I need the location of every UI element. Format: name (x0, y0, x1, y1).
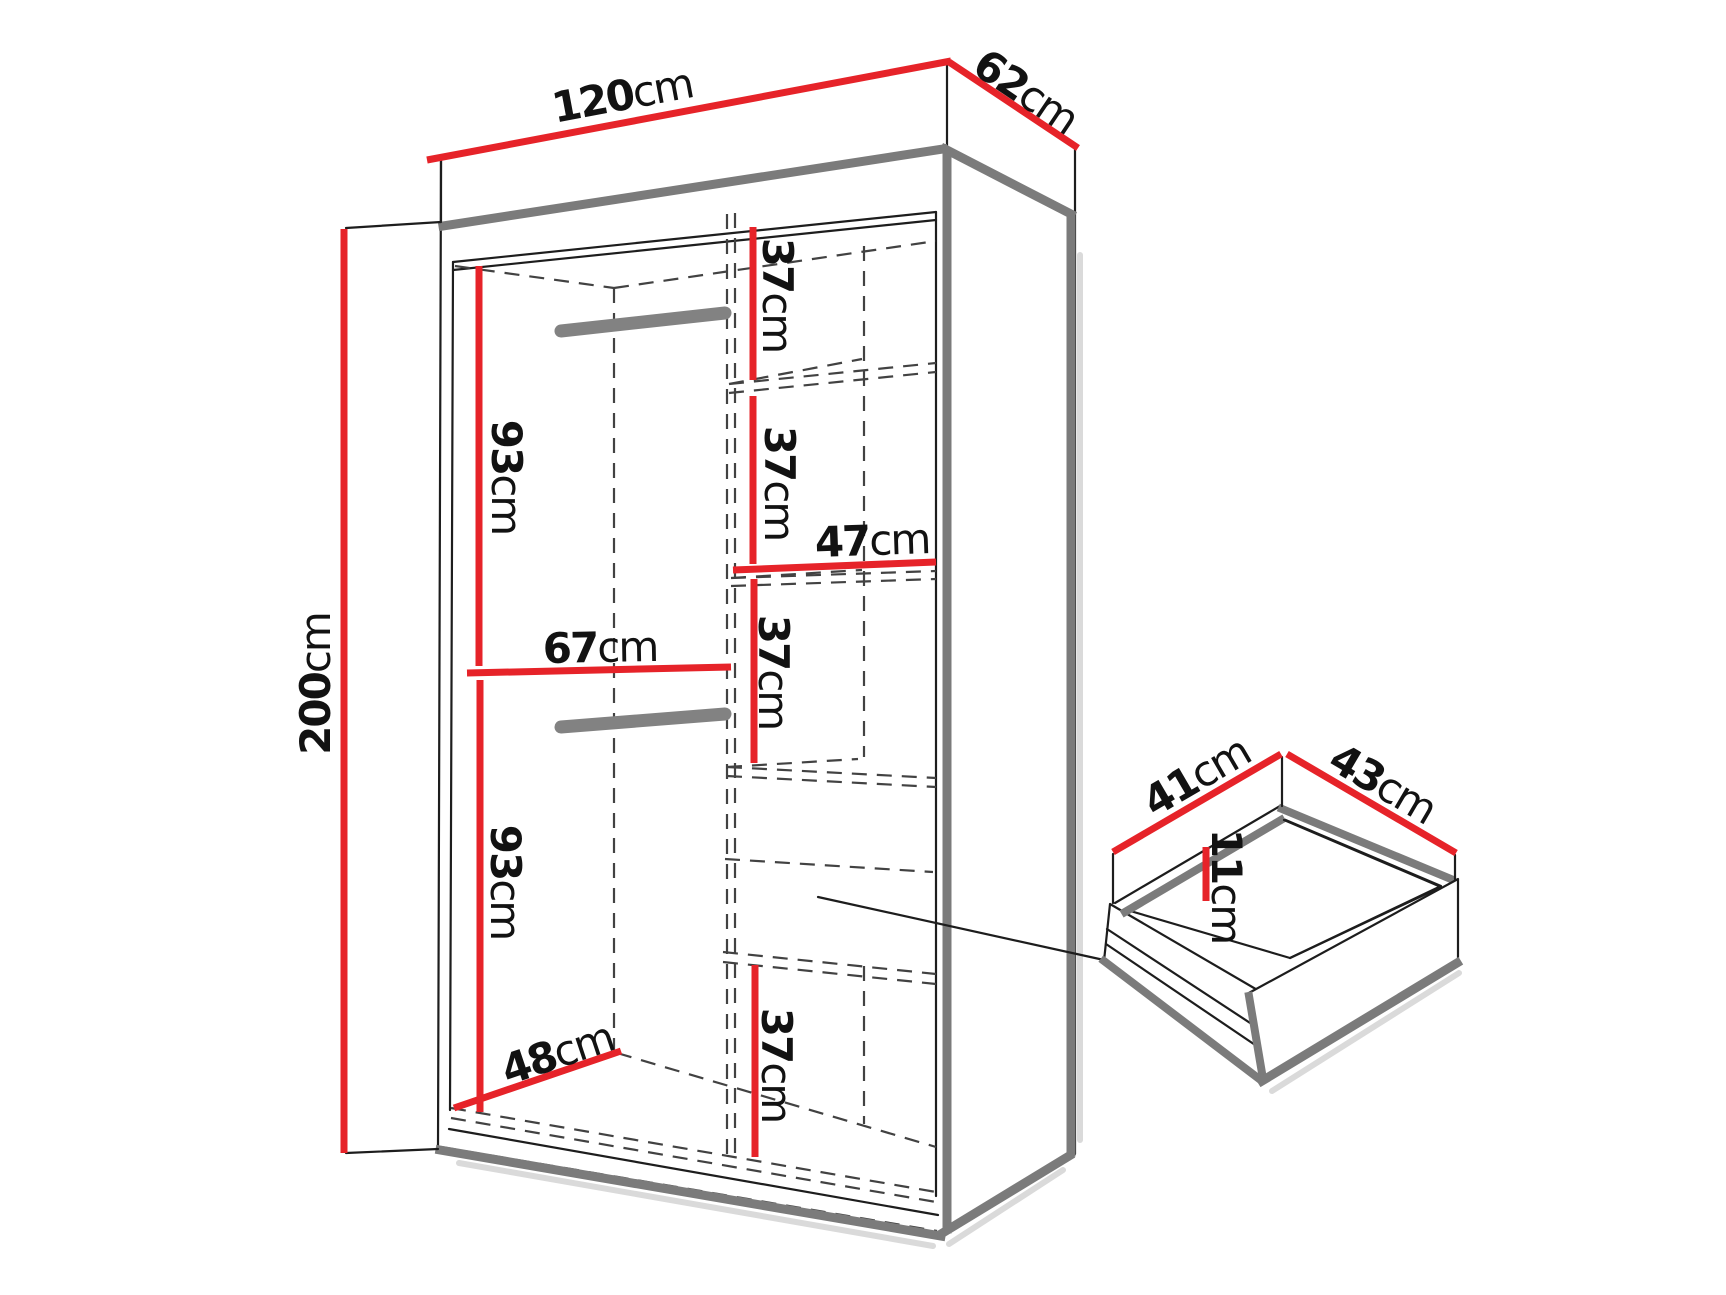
wardrobe-dimension-drawing: 120cm 62cm 200cm 93cm 67cm 93cm 48cm 37c… (0, 0, 1726, 1295)
label-hang-lower-93: 93cm (481, 825, 530, 939)
label-column-width-67: 67cm (542, 622, 657, 673)
label-drawer-width-43: 43cm (1321, 733, 1445, 833)
label-drawer-height-11: 11cm (1202, 829, 1251, 943)
label-shelf-width-47: 47cm (814, 514, 930, 567)
label-height-200: 200cm (291, 613, 340, 755)
label-drawer-depth-41: 41cm (1134, 726, 1258, 826)
label-shelf-gap-3: 37cm (749, 615, 798, 729)
diagram-canvas: 120cm 62cm 200cm 93cm 67cm 93cm 48cm 37c… (0, 0, 1726, 1295)
label-shelf-gap-1: 37cm (753, 238, 802, 352)
drawer (1104, 806, 1459, 1091)
label-shelf-gap-4: 37cm (752, 1008, 801, 1122)
label-shelf-gap-2: 37cm (755, 426, 804, 540)
label-hang-upper-93: 93cm (482, 420, 531, 534)
